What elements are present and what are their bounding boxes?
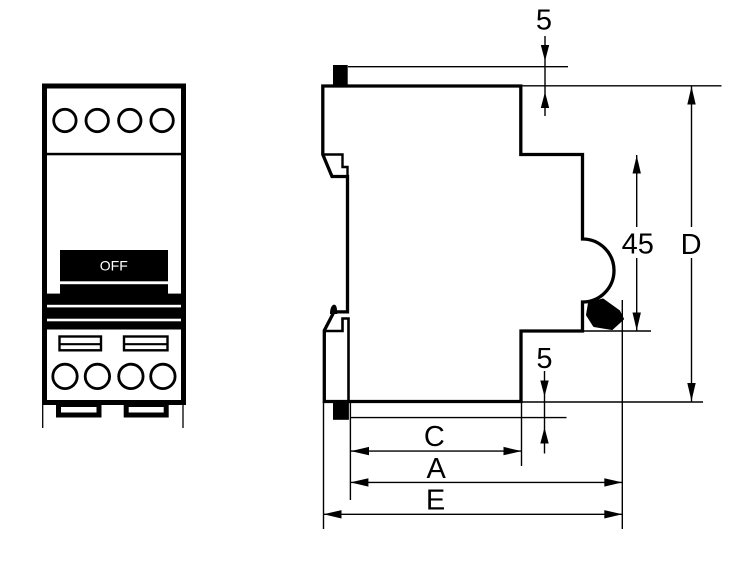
svg-text:45: 45 <box>622 228 654 260</box>
svg-text:E: E <box>426 484 445 516</box>
svg-text:D: D <box>681 229 702 261</box>
svg-text:5: 5 <box>536 343 552 375</box>
svg-text:OFF: OFF <box>100 258 128 274</box>
svg-text:A: A <box>427 453 447 485</box>
svg-text:C: C <box>424 421 445 453</box>
svg-text:5: 5 <box>536 5 552 37</box>
